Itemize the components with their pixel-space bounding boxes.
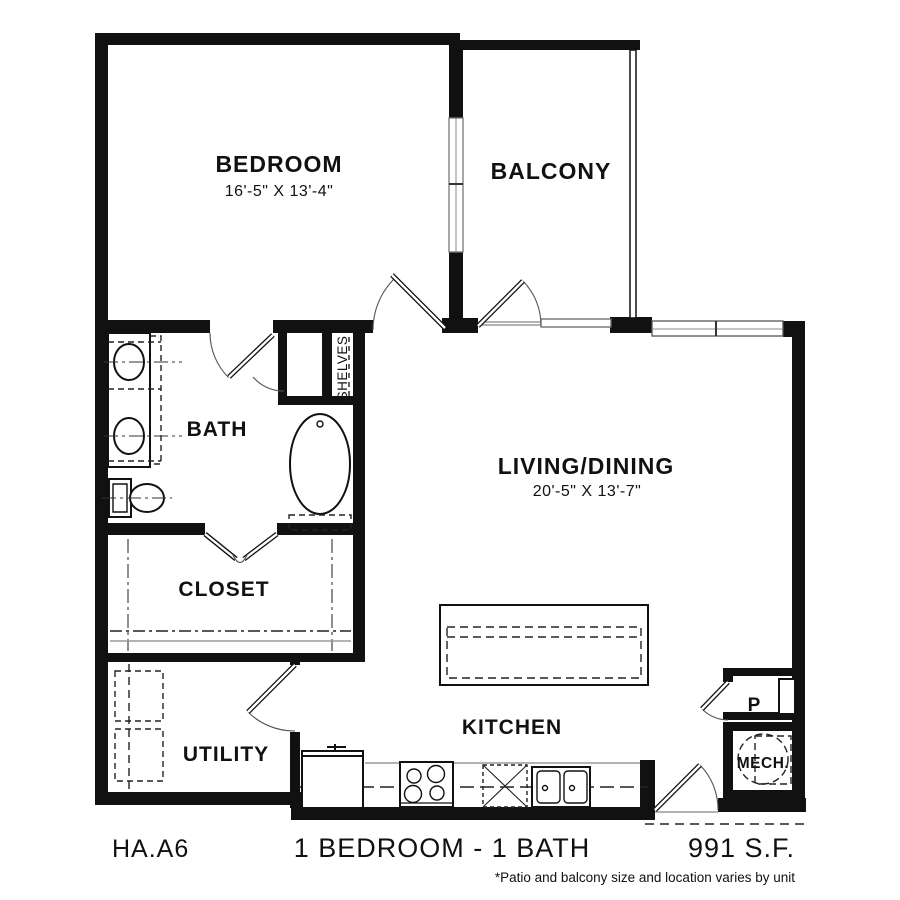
wall-bath-closet-b [277,523,365,535]
kitchen-sink [532,767,590,807]
entry-door [655,765,718,812]
wall-bedroom-bottom-a [95,320,210,333]
wall-bedroom-top [95,33,460,45]
wall-bottom-right [718,798,806,812]
wall-bottom-utility [95,792,303,805]
wall-balcony-top [460,40,640,50]
floor-plan-page: BEDROOM 16'-5" X 13'-4" BALCONY BATH SHE… [0,0,900,900]
wall-bed-balcony-lower [449,252,463,318]
wall-top-right-corner [783,321,805,337]
wall-pantry-left-stub [723,668,733,682]
bathtub [289,414,351,530]
balcony-railing [630,50,636,318]
floor-plan-drawing: BEDROOM 16'-5" X 13'-4" BALCONY BATH SHE… [0,0,900,900]
pantry-label: P [748,695,761,716]
wall-bed-balcony-upper [449,45,463,118]
wall-exterior-right [792,337,805,812]
closet-double-doors [205,534,277,563]
wall-utility-right-a [290,653,300,665]
balcony-door [478,281,541,326]
closet-label: CLOSET [178,578,269,601]
windows [449,50,783,336]
unit-code: HA.A6 [112,835,189,863]
mech-label: MECH. [737,755,789,772]
kitchen-label: KITCHEN [462,716,562,739]
wall-utility-right-b [290,732,300,808]
bath-door [210,333,284,391]
toilet [102,479,172,517]
utility-fittings [115,664,163,794]
wall-closet-utility [95,653,365,662]
dishwasher [483,765,527,807]
kitchen-island [440,605,648,685]
wall-shelves-left [278,333,287,405]
bedroom-balcony-window [449,118,463,252]
bedroom-door [373,275,445,330]
utility-door [248,665,295,731]
dryer [115,729,163,781]
wall-bath-closet-a [95,523,205,535]
wall-entry-jamb [640,760,655,808]
bedroom-dims: 16'-5" X 13'-4" [225,183,334,200]
refrigerator [302,744,363,808]
wall-pantry-top [723,668,793,676]
utility-label: UTILITY [183,743,269,766]
stove [400,762,453,807]
wall-mech-left [723,722,733,798]
wall-mech-top [723,722,795,731]
bedroom-label: BEDROOM [215,151,342,177]
pantry-niche [779,679,795,714]
living-dining-label: LIVING/DINING [498,453,675,479]
unit-area: 991 S.F. [688,833,795,863]
living-dining-dims: 20'-5" X 13'-7" [533,483,642,500]
wall-mech-bottom [723,790,795,798]
footer: HA.A6 1 BEDROOM - 1 BATH 991 S.F. *Patio… [112,833,795,885]
balcony-sliding-panel [480,319,611,327]
wall-shelves-inner [322,333,332,405]
footnote: *Patio and balcony size and location var… [495,870,795,885]
kitchen-fixtures [300,605,648,808]
wall-bedroom-bottom-b [273,320,373,333]
washer [115,671,163,721]
unit-configuration: 1 BEDROOM - 1 BATH [294,833,591,863]
shelves-label: SHELVES [335,336,350,401]
bath-label: BATH [187,418,248,441]
wall-tub-top [278,396,365,405]
wall-balcony-post [610,317,652,333]
wall-bed-balcony-footing [442,318,478,333]
wall-exterior-left [95,33,108,805]
balcony-label: BALCONY [491,158,612,184]
living-room-window [652,321,783,336]
wall-block-right [353,333,365,662]
